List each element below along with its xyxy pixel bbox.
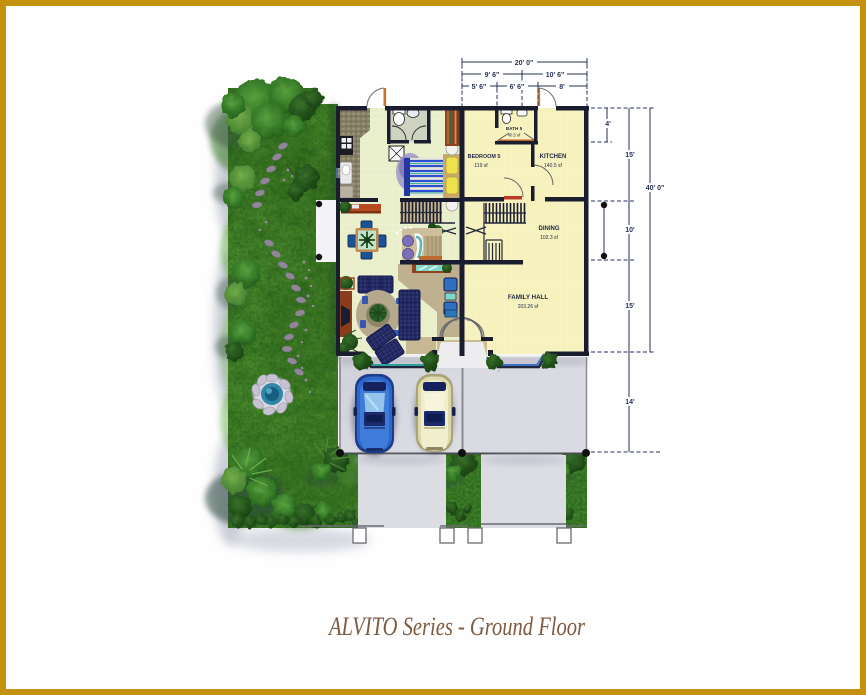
svg-text:40' 0": 40' 0" [646,185,665,192]
svg-text:8': 8' [559,84,565,91]
svg-text:15': 15' [625,152,635,159]
svg-text:14': 14' [625,399,635,406]
svg-text:119 sf: 119 sf [474,163,488,169]
svg-text:203.26 sf: 203.26 sf [518,304,539,310]
svg-text:BEDROOM 5: BEDROOM 5 [468,154,501,160]
svg-text:6' 6": 6' 6" [510,84,525,91]
svg-text:140.5 sf: 140.5 sf [544,163,562,169]
svg-text:10' 6": 10' 6" [546,72,565,79]
svg-text:ALVITO Series - Ground Floor: ALVITO Series - Ground Floor [327,612,585,641]
svg-text:10': 10' [625,227,635,234]
svg-text:BATH 5: BATH 5 [506,126,523,131]
svg-text:DINING: DINING [539,226,560,232]
svg-text:102.3 sf: 102.3 sf [540,235,558,241]
svg-text:40.5 sf: 40.5 sf [508,133,521,138]
svg-text:4': 4' [605,121,611,128]
svg-text:KITCHEN: KITCHEN [540,154,567,160]
svg-text:9' 6": 9' 6" [485,72,500,79]
svg-text:FAMILY HALL: FAMILY HALL [508,294,548,301]
svg-text:20' 0": 20' 0" [515,60,534,67]
svg-text:15': 15' [625,303,635,310]
svg-text:5' 6": 5' 6" [472,84,487,91]
